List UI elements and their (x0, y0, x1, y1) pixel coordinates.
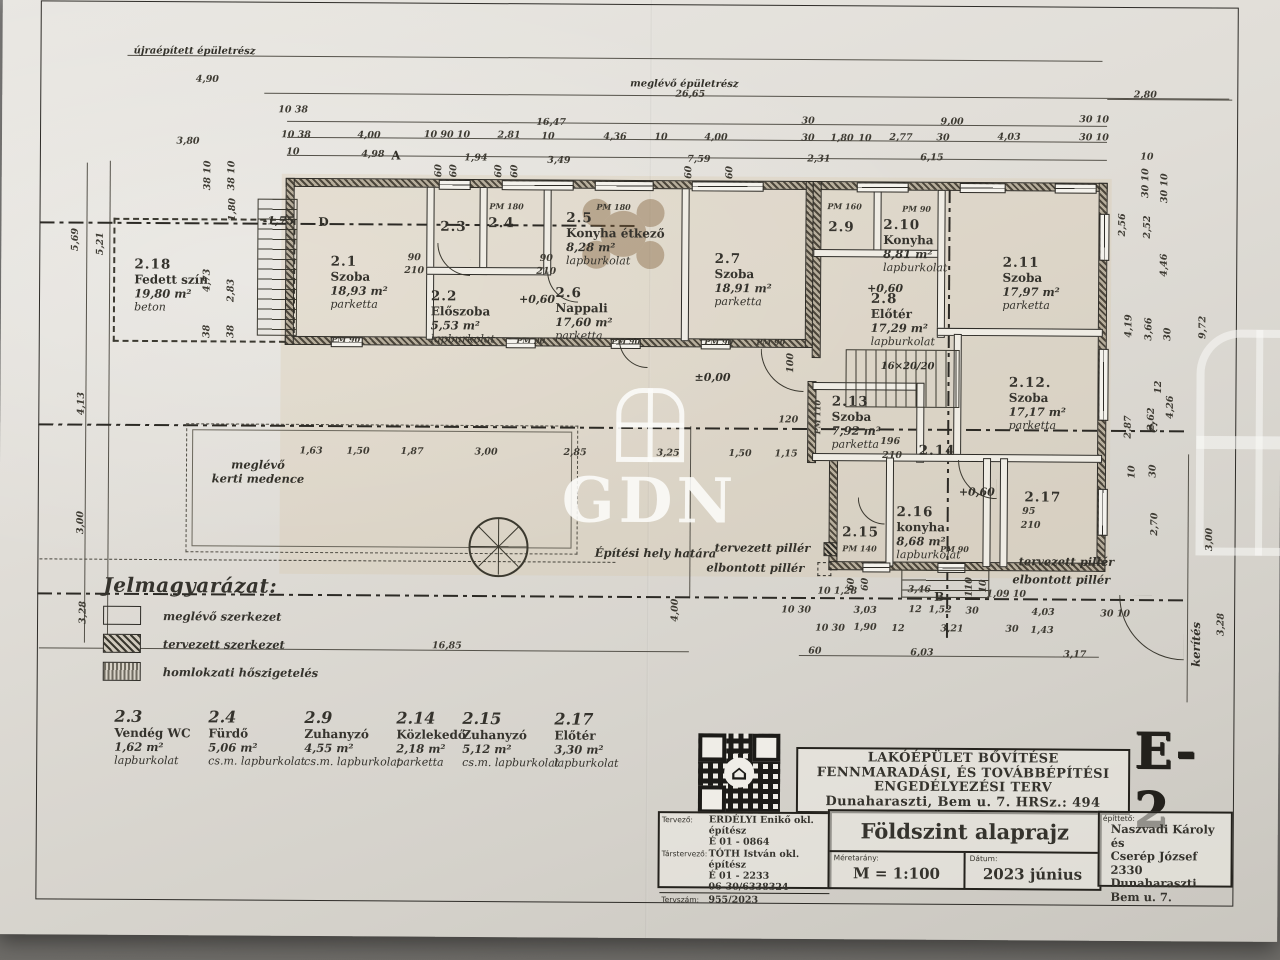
dimension-label: 9,00 (941, 116, 964, 127)
level-mark: +0,60 (959, 485, 995, 498)
room-rfl: parketta (1002, 299, 1059, 312)
dimension-label: 2,83 (225, 279, 236, 302)
dimension-label: 3,49 (547, 155, 570, 166)
dimension-label: 3,46 (908, 584, 931, 595)
dimension-label: 26,65 (675, 89, 705, 100)
dimension-label: 4,46 (1159, 254, 1170, 277)
plan-annotation: tervezett pillér (1019, 554, 1115, 569)
room-rid: 2.18 (134, 256, 208, 272)
scale-value: M = 1:100 (833, 864, 959, 883)
dimension-label: 10 30 (815, 623, 845, 634)
room-rfl: lapburkolat (871, 335, 935, 348)
window (1099, 214, 1109, 261)
room-label-2-13: 2.13Szoba7,92 m²parketta (831, 394, 881, 451)
plan-annotation: elbontott pillér (1012, 572, 1110, 587)
client-block: építtető: Naszvadi Károly ésCserép Józse… (1097, 811, 1232, 888)
opening-size-label: PM 90 (611, 336, 640, 346)
legend-title: Jelmagyarázat: (103, 573, 333, 598)
room-rnm: Nappali (555, 301, 612, 315)
dimension-label: 4,36 (603, 131, 626, 142)
room-rid: 2.6 (555, 285, 612, 301)
dimension-label: 10 (1140, 152, 1153, 163)
dimension-label: 1,50 (728, 448, 751, 459)
dimension-label: 60 (493, 164, 504, 177)
dimension-label: 4,00 (670, 599, 681, 622)
plan-annotation: kerítés (1189, 622, 1203, 667)
room-rid: 2.9 (828, 219, 855, 235)
dimension-label: 2,31 (807, 154, 830, 165)
partition-wall (426, 267, 548, 276)
room-rid: 2.1 (331, 254, 388, 270)
dimension-label: 1,80 (227, 198, 238, 221)
window (1098, 489, 1108, 536)
room-rnm: Szoba (832, 410, 881, 424)
room-label-2-5: 2.5Konyha étkező8,28 m²lapburkolat (566, 210, 665, 268)
designer-name: ERDÉLYI Enikő okl. építészÉ 01 - 0864 (709, 813, 830, 848)
room-label-2-7: 2.7Szoba18,91 m²parketta (714, 251, 772, 308)
plan-number: 955/2023 (708, 893, 758, 905)
dimension-label: 30 (1005, 624, 1018, 635)
room-rar: 18,93 m² (330, 284, 387, 298)
room-rnm: Konyha (883, 233, 947, 247)
dimension-label: 120 (778, 414, 798, 425)
room-rnm: Szoba (1009, 391, 1066, 405)
dimension-label: 4,03 (997, 132, 1020, 143)
room-rid: 2.17 (1024, 489, 1061, 505)
photographed-floor-plan: { "sheet": { "code": "E-2", "watermark":… (0, 0, 1280, 960)
room-rfl: lapburkolat (883, 261, 947, 274)
text-line: 06-30/6338324 (708, 881, 829, 893)
opening-size-label: PM 90 (516, 335, 545, 345)
room-rfl: parketta (1009, 419, 1066, 432)
dimension-label: 4,98 (361, 149, 384, 160)
dimension-label: 7,59 (687, 154, 710, 165)
window (857, 182, 909, 192)
room-rar: 8,28 m² (566, 240, 665, 255)
dimension-label: 196 (880, 436, 900, 447)
dimension-label: 30 (1147, 464, 1158, 477)
compass-rose (468, 517, 528, 577)
dimension-label: 38 10 (226, 161, 237, 191)
room-label-2-1: 2.1Szoba18,93 m²parketta (330, 254, 388, 311)
dimension-label: 30 (965, 605, 978, 616)
dimension-label: 1,50 (346, 446, 369, 457)
dimension-label: 1,09 10 (986, 589, 1026, 600)
legend-swatch-planned (103, 634, 141, 653)
room-label-2-4: 2.4 (488, 215, 515, 231)
dimension-label: 2,77 (889, 132, 912, 143)
window (862, 562, 890, 572)
legend-label: homlokzati hőszigetelés (163, 665, 319, 680)
dimension-label: 10 (541, 131, 554, 142)
gate-arc (1119, 595, 1184, 660)
dimension-label: 16,85 (432, 640, 462, 651)
room-rar: 7,92 m² (832, 424, 881, 438)
dimension-label: 30 10 (1159, 173, 1170, 203)
dimension-label: 4,03 (1032, 607, 1055, 618)
room-rfl: beton (134, 300, 208, 313)
partition-wall (479, 187, 488, 275)
legend-label: tervezett szerkezet (163, 637, 285, 652)
dimension-label: 30 (801, 115, 814, 126)
legend-swatch-insulation (103, 662, 141, 681)
dimension-label: 1,87 (400, 446, 423, 457)
dimension-label: 12 (891, 623, 904, 634)
dimension-label: 38 (201, 325, 212, 338)
dimension-label: 210 (536, 266, 556, 277)
dimension-label: 60 (860, 578, 871, 591)
window (692, 181, 764, 191)
demolished-pillar-symbol (817, 562, 831, 576)
dimension-label: 2,80 (1134, 90, 1157, 101)
room-rid: 2.7 (715, 251, 772, 267)
room-rar: 17,97 m² (1002, 285, 1059, 299)
dimension-label: 10 90 10 (424, 129, 470, 140)
room-label-2-9: 2.9 (828, 219, 855, 235)
dimension-label: 5,69 (70, 228, 81, 251)
opening-size-label: PM 160 (827, 201, 861, 211)
room-schedule-item: 2.17Előtér 3,30 m²lapburkolat (554, 709, 674, 770)
partition-wall (681, 188, 690, 341)
dimension-label: 30 10 (1079, 132, 1109, 143)
room-rfl: lapburkolat (431, 332, 495, 345)
room-rfl: parketta (831, 438, 880, 451)
window (1055, 184, 1097, 194)
dimension-label: 1,80 (830, 133, 853, 144)
gdn-watermark-partial (1195, 329, 1280, 556)
dimension-label: 4,13 (76, 392, 87, 415)
scale-label: Méretarány: (834, 853, 960, 863)
text-line: 2330 Dunaharaszti (1110, 863, 1227, 891)
dimension-label: 10 38 (281, 129, 311, 140)
opening-size-label: PM 90 (704, 336, 733, 346)
dimension-label: 3,28 (78, 601, 89, 624)
room-rfl: lapburkolat (566, 254, 665, 268)
legend-swatch-existing (103, 606, 141, 625)
room-rnm: Szoba (330, 270, 387, 284)
sheet-code: E-2 (1134, 747, 1234, 814)
dimension-label: 60 (509, 165, 520, 178)
room-label-2-18: 2.18Fedett szín19,80 m²beton (134, 256, 208, 313)
dimension-label: 6,15 (920, 152, 943, 163)
opening-size-label: PM 90 (331, 334, 360, 344)
dimension-label: 2,87 (1123, 415, 1134, 438)
dimension-label: 30 (801, 132, 814, 143)
axis-letter: B (934, 590, 944, 604)
dimension-label: 95 (1022, 506, 1035, 517)
room-rid: 2.16 (897, 504, 961, 520)
dimension-label: 16,47 (536, 117, 566, 128)
dimension-label: 2,52 (1142, 215, 1153, 238)
room-label-2-14: 2.14 (919, 443, 956, 459)
dimension-label: 3,25 (656, 448, 679, 459)
room-rid: 2.11 (1003, 255, 1060, 271)
qr-code: ⌂ (698, 733, 780, 813)
room-rar: 17,17 m² (1009, 405, 1066, 419)
text-line: Naszvadi Károly és (1111, 823, 1228, 851)
door-swing-arc (858, 497, 885, 524)
room-label-2-6: 2.6Nappali17,60 m²parketta (555, 285, 613, 342)
opening-size-label: PM 180 (489, 201, 523, 211)
dimension-label: 3,17 (1063, 649, 1086, 660)
room-rnm: Szoba (715, 267, 772, 281)
dimension-label: 10 (654, 132, 667, 143)
date-value: 2023 június (969, 865, 1095, 884)
dimension-label: 60 (808, 646, 821, 657)
dimension-line (1107, 99, 1232, 101)
wall (286, 337, 813, 347)
codesigner-name: TÓTH István okl. építészÉ 01 - 223306-30… (708, 847, 829, 893)
codesigner-label: Társtervező: (659, 847, 708, 892)
dimension-label: 60 (846, 578, 857, 591)
dimension-label: 2,81 (497, 130, 520, 141)
opening-size-label: PM 90 (902, 204, 931, 214)
room-rid: 2.2 (431, 288, 495, 304)
room-rnm: konyha (896, 520, 960, 534)
axis-letter: C (1148, 421, 1158, 435)
dimension-label: 1,43 (1030, 625, 1053, 636)
partition-wall (873, 189, 881, 255)
room-label-2-11: 2.11Szoba17,97 m²parketta (1002, 255, 1060, 312)
dimension-label: 3,00 (75, 511, 86, 534)
dimension-label: 9,72 (1197, 316, 1208, 339)
room-rid: 2.12. (1009, 375, 1066, 391)
room-rar: 18,91 m² (714, 281, 771, 295)
room-label-2-2: 2.2Előszoba5,53 m²lapburkolat (431, 288, 496, 345)
text-line: É 01 - 2233 (708, 870, 829, 882)
dimension-label: 100 (785, 353, 796, 373)
dimension-label: 38 (225, 325, 236, 338)
room-rid: 2.3 (440, 219, 467, 235)
room-rid: 2.8 (871, 291, 935, 307)
room-rfl: parketta (330, 298, 387, 311)
dimension-label: 4,00 (357, 130, 380, 141)
designer-block: Tervező: ERDÉLYI Enikő okl. építészÉ 01 … (657, 811, 831, 889)
axis-letter: A (391, 148, 400, 162)
paper-sheet: GDN 4,9026,652,8016,479,003030 1010 3810… (0, 0, 1280, 942)
room-rar: 17,60 m² (555, 315, 612, 329)
dimension-label: 90 (540, 253, 553, 264)
room-rid: 2.5 (566, 210, 665, 227)
plan-number-label: Tervszám: (659, 893, 708, 905)
dimension-label: 1,90 (853, 622, 876, 633)
dimension-label: 3,00 (1204, 528, 1215, 551)
dimension-label: 3,80 (176, 136, 199, 147)
dashed-line (39, 558, 615, 563)
room-rar: 19,80 m² (134, 286, 208, 300)
client-name: Naszvadi Károly ésCserép József2330 Duna… (1102, 823, 1227, 905)
dimension-label: 2,70 (1149, 513, 1160, 536)
dimension-line (287, 137, 1107, 143)
axis-letter: D (318, 215, 328, 229)
room-label-2-17: 2.17 (1024, 489, 1061, 505)
room-rnm: Konyha étkező (566, 226, 665, 241)
room-rar: 5,53 m² (431, 318, 495, 332)
dimension-label: 10 38 (278, 104, 308, 115)
room-rfl: parketta (555, 329, 612, 342)
dimension-label: 38 10 (202, 160, 213, 190)
dimension-label: 60 (683, 166, 694, 179)
partition-wall (999, 458, 1008, 567)
window (439, 180, 471, 190)
project-title-block: LAKÓÉPÜLET BŐVÍTÉSEFENNMARADÁSI, ÉS TOVÁ… (796, 747, 1130, 815)
text-line: Bem u. 7. (1110, 890, 1227, 904)
door-swing-arc (760, 349, 803, 392)
partition-wall (885, 458, 894, 567)
level-mark: +0,60 (519, 293, 555, 306)
room-rid: 2.4 (488, 215, 515, 231)
dimension-label: 210 (1021, 520, 1041, 531)
date-label: Dátum: (970, 854, 1096, 864)
dimension-label: 12 (908, 604, 921, 615)
dimension-label: 90 (408, 252, 421, 263)
dimension-label: 110 (964, 577, 975, 597)
dimension-label: 3,66 (1143, 318, 1154, 341)
dimension-label: 60 (433, 164, 444, 177)
text-line: TÓTH István okl. építész (709, 848, 830, 871)
wall (813, 182, 821, 357)
dimension-label: 2,56 (1117, 213, 1128, 236)
dimension-label: 210 (882, 450, 902, 461)
dimension-label: 1,52 (929, 604, 952, 615)
dimension-label: 1,63 (299, 445, 322, 456)
legend-label: meglévő szerkezet (163, 609, 281, 624)
dimension-label: 1,15 (774, 448, 797, 459)
plan-annotation: tervezett pillér (715, 540, 811, 555)
dimension-label: 3,03 (854, 605, 877, 616)
planned-pillar-symbol (823, 542, 837, 556)
window (595, 181, 654, 191)
dimension-label: 30 (1162, 328, 1173, 341)
dimension-label: 60 (448, 164, 459, 177)
dimension-label: 4,90 (196, 74, 219, 85)
window (502, 180, 574, 190)
plan-annotation: meglévő kerti medence (212, 457, 305, 486)
room-label-2-10: 2.10Konyha8,81 m²lapburkolat (883, 217, 948, 274)
dimension-label: 30 10 (1100, 608, 1130, 619)
room-label-2-12: 2.12.Szoba17,17 m²parketta (1009, 375, 1067, 432)
dimension-label: 30 10 (1079, 114, 1109, 125)
room-rid: 2.10 (883, 217, 947, 233)
dimension-line (799, 655, 1099, 658)
room-label-2-15: 2.15 (842, 524, 879, 540)
dimension-label: 1,94 (464, 152, 487, 163)
opening-size-label: PM 140 (842, 543, 876, 553)
dimension-label: 10 (858, 133, 871, 144)
plan-annotation: meglévő épületrész (630, 78, 738, 90)
plan-annotation: elbontott pillér (706, 560, 804, 575)
dimension-label: 210 (404, 265, 424, 276)
dimension-label: 3,00 (474, 446, 497, 457)
dimension-label: 4,00 (704, 132, 727, 143)
drawing-title-block: Földszint alaprajz Méretarány: M = 1:100… (827, 809, 1101, 891)
legend: Jelmagyarázat: meglévő szerkezet terveze… (103, 573, 334, 682)
partition-wall (812, 453, 1102, 463)
room-rar: 17,29 m² (871, 321, 935, 335)
dimension-label: 2,85 (563, 447, 586, 458)
dimension-label: 4,26 (1165, 396, 1176, 419)
house-icon: ⌂ (724, 758, 754, 788)
room-rnm: Szoba (1003, 271, 1060, 285)
drawing-title: Földszint alaprajz (830, 811, 1100, 854)
designer-label: Tervező: (660, 813, 709, 847)
dimension-line (264, 93, 1229, 100)
room-rid: 2.15 (842, 524, 879, 540)
room-label-2-8: 2.8Előtér17,29 m²lapburkolat (871, 291, 936, 348)
window (1098, 349, 1108, 421)
window (960, 183, 1006, 193)
dimension-label: 4,19 (1123, 314, 1134, 337)
room-rfl: lapburkolat (896, 548, 960, 561)
dimension-label: 10 30 (781, 604, 811, 615)
room-rar: 8,68 m² (896, 534, 960, 548)
text-line: Cserép József (1111, 850, 1228, 864)
opening-size-label: PM 110 (812, 400, 822, 434)
room-rfl: parketta (714, 295, 771, 308)
plan-annotation: Építési hely határa (595, 546, 717, 561)
plan-annotation: újraépített épületrész (134, 45, 256, 57)
room-rid: 2.14 (919, 443, 956, 459)
dimension-label: 10 (1126, 465, 1137, 478)
dimension-label: 5,21 (95, 232, 106, 255)
level-mark: ±0,00 (695, 371, 731, 384)
dimension-label: 60 (724, 166, 735, 179)
dimension-label: 10 (286, 146, 299, 157)
dimension-label: 6,03 (910, 647, 933, 658)
dimension-label: 30 10 (1140, 168, 1151, 198)
text-line: ERDÉLYI Enikő okl. építész (709, 814, 830, 837)
dimension-line (128, 55, 1103, 62)
room-rnm: Előtér (871, 307, 935, 321)
room-rnm: Előszoba (431, 304, 495, 318)
gdn-watermark: GDN (562, 388, 738, 538)
dimension-line (287, 121, 1107, 127)
dimension-line (689, 426, 691, 598)
room-rnm: Fedett szín (134, 272, 208, 286)
plan-annotation: 16×20/20 (881, 361, 935, 372)
room-label-2-16: 2.16konyha8,68 m²lapburkolat (896, 504, 961, 561)
dimension-label: 3,21 (940, 623, 963, 634)
opening-size-label: PM 90 (756, 337, 785, 347)
dimension-label: 30 (936, 132, 949, 143)
room-rar: 8,81 m² (883, 247, 947, 261)
room-rid: 2.13 (832, 394, 881, 410)
room-label-2-3: 2.3 (440, 219, 467, 235)
dimension-label: 12 (1153, 381, 1164, 394)
level-mark: -1,75 (263, 214, 294, 227)
text-line: É 01 - 0864 (709, 836, 830, 848)
dimension-label: 3,28 (1215, 613, 1226, 636)
